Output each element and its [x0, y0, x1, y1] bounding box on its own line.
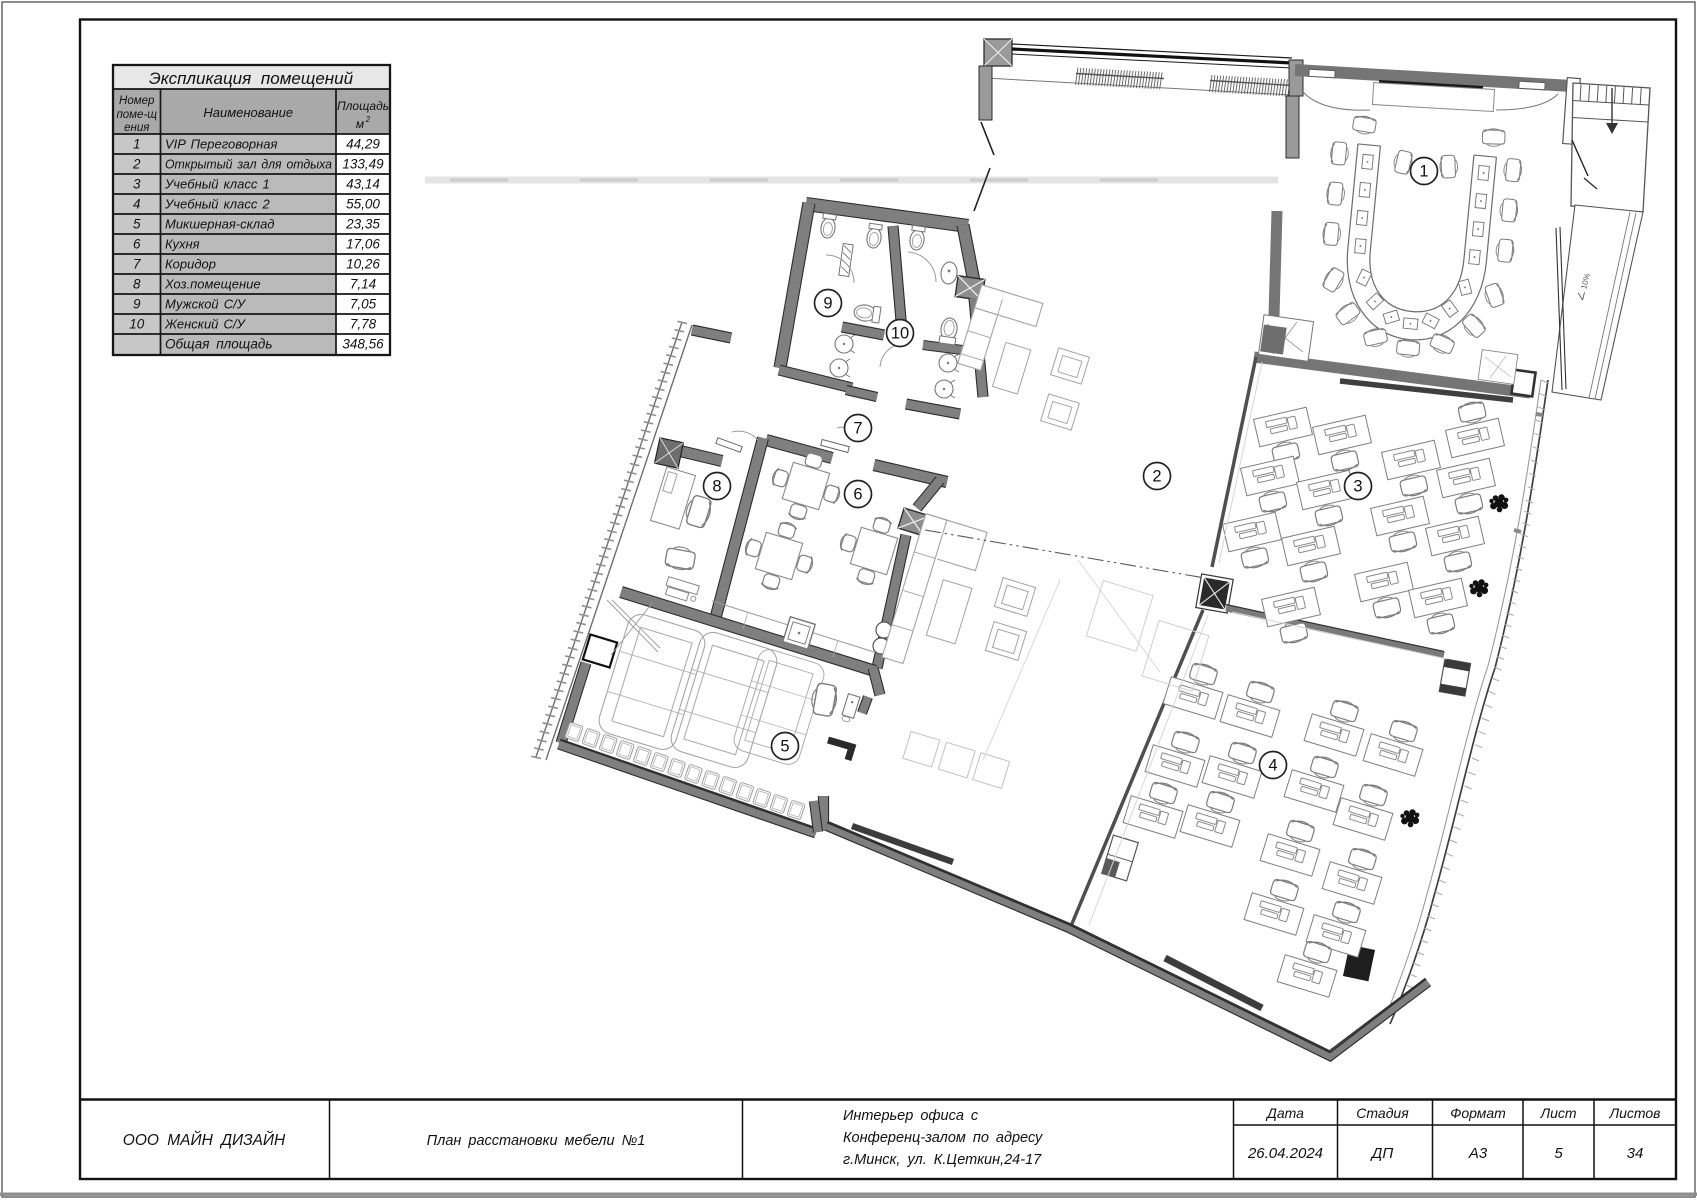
svg-text:Листов: Листов	[1609, 1105, 1661, 1121]
svg-text:17,06: 17,06	[346, 237, 380, 252]
svg-text:133,49: 133,49	[342, 157, 384, 172]
svg-text:Номер: Номер	[119, 95, 155, 107]
svg-text:А3: А3	[1468, 1145, 1488, 1162]
svg-text:8: 8	[133, 277, 141, 292]
svg-text:Открытый зал для отдыха: Открытый зал для отдыха	[165, 157, 332, 172]
svg-text:8: 8	[712, 478, 721, 496]
svg-text:34: 34	[1627, 1145, 1644, 1162]
svg-text:55,00: 55,00	[346, 197, 380, 212]
svg-text:Экспликация помещений: Экспликация помещений	[149, 69, 354, 88]
svg-text:9: 9	[823, 295, 832, 313]
svg-text:2: 2	[132, 157, 141, 172]
svg-text:Площадь: Площадь	[337, 99, 389, 113]
svg-text:ения: ения	[124, 122, 149, 134]
svg-text:Лист: Лист	[1539, 1105, 1576, 1121]
svg-text:6: 6	[853, 486, 862, 504]
svg-text:5: 5	[133, 217, 141, 232]
svg-text:3: 3	[133, 177, 141, 192]
svg-text:Кухня: Кухня	[165, 237, 200, 252]
svg-text:Интерьер офиса с: Интерьер офиса с	[843, 1108, 979, 1124]
svg-text:поме-щ: поме-щ	[116, 109, 157, 121]
svg-text:43,14: 43,14	[346, 177, 380, 192]
svg-text:Учебный класс 1: Учебный класс 1	[164, 177, 270, 192]
svg-text:м: м	[356, 117, 364, 131]
svg-text:7,14: 7,14	[350, 277, 376, 292]
svg-text:23,35: 23,35	[345, 217, 380, 232]
svg-text:Общая площадь: Общая площадь	[165, 337, 272, 352]
svg-text:Женский С/У: Женский С/У	[164, 317, 247, 332]
svg-text:ДП: ДП	[1370, 1145, 1394, 1162]
svg-text:6: 6	[133, 237, 141, 252]
svg-text:План расстановки мебели №1: План расстановки мебели №1	[427, 1133, 646, 1149]
svg-text:Мужской С/У: Мужской С/У	[165, 297, 247, 312]
svg-text:4: 4	[1268, 757, 1277, 775]
svg-text:3: 3	[1353, 478, 1362, 496]
svg-text:7,78: 7,78	[350, 317, 377, 332]
svg-text:1: 1	[133, 137, 141, 152]
svg-text:5: 5	[1554, 1145, 1563, 1162]
svg-text:Наименование: Наименование	[203, 105, 293, 120]
svg-text:7,05: 7,05	[350, 297, 377, 312]
svg-text:Хоз.помещение: Хоз.помещение	[164, 277, 261, 292]
svg-text:ООО МАЙН ДИЗАЙН: ООО МАЙН ДИЗАЙН	[123, 1131, 286, 1149]
svg-text:9: 9	[133, 297, 141, 312]
svg-text:348,56: 348,56	[342, 337, 384, 352]
svg-text:44,29: 44,29	[346, 137, 380, 152]
svg-text:Конференц-залом по адресу: Конференц-залом по адресу	[843, 1130, 1043, 1146]
svg-text:Коридор: Коридор	[165, 257, 216, 272]
svg-text:2: 2	[365, 115, 371, 124]
svg-text:г.Минск, ул. К.Цеткин,24-17: г.Минск, ул. К.Цеткин,24-17	[843, 1152, 1042, 1168]
svg-text:1: 1	[1419, 163, 1428, 181]
svg-text:Стадия: Стадия	[1356, 1105, 1409, 1121]
svg-text:7: 7	[133, 257, 141, 272]
svg-text:10: 10	[891, 325, 909, 343]
svg-text:10: 10	[129, 317, 145, 332]
svg-text:4: 4	[133, 197, 141, 212]
svg-text:26.04.2024: 26.04.2024	[1247, 1145, 1323, 1162]
svg-text:7: 7	[853, 420, 862, 438]
svg-text:10,26: 10,26	[346, 257, 380, 272]
svg-text:2: 2	[1152, 468, 1161, 486]
svg-text:VIP Переговорная: VIP Переговорная	[165, 137, 278, 152]
svg-text:5: 5	[780, 738, 789, 756]
svg-text:Формат: Формат	[1450, 1105, 1506, 1121]
svg-text:Учебный класс 2: Учебный класс 2	[164, 197, 270, 212]
svg-text:Микшерная-склад: Микшерная-склад	[165, 217, 275, 232]
svg-text:Дата: Дата	[1265, 1105, 1304, 1121]
